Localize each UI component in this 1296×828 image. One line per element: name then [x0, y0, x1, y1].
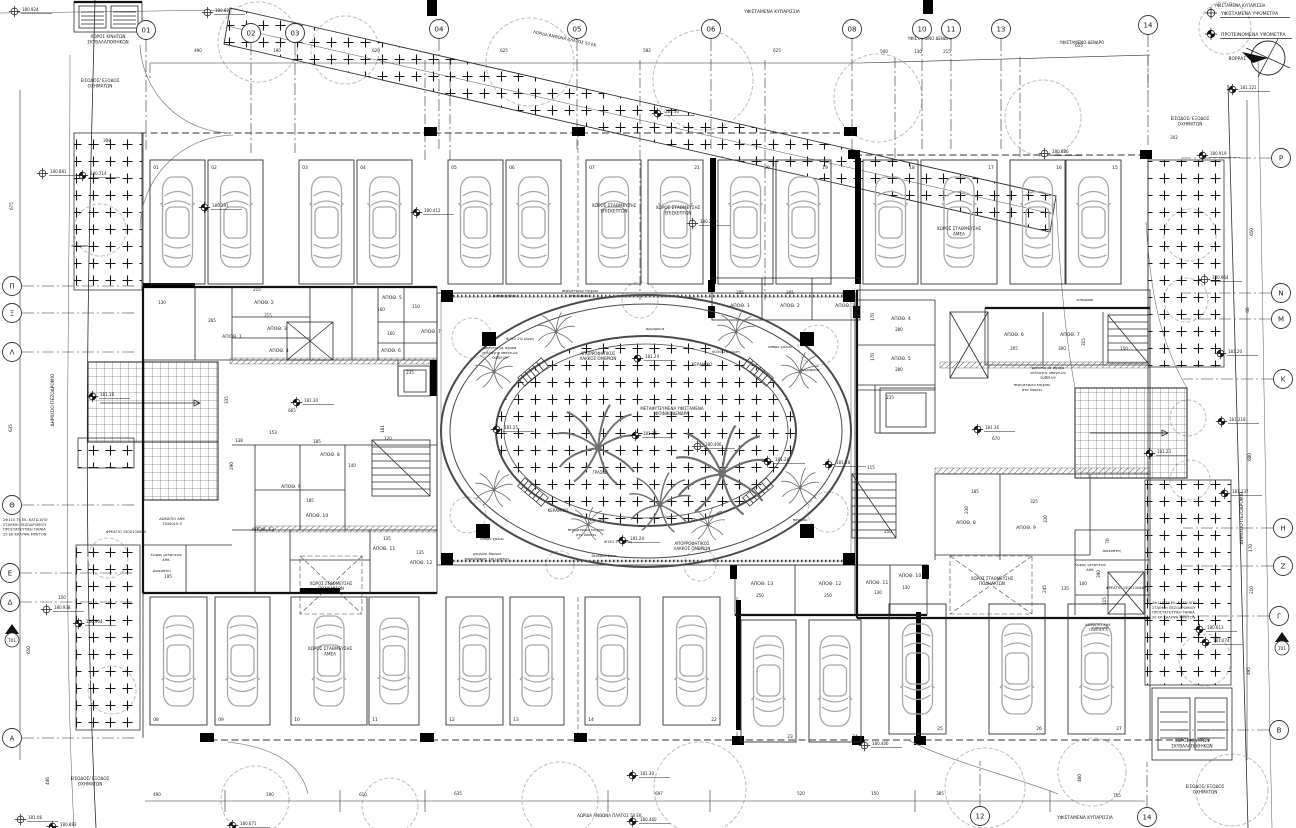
dimension-label: 130 — [914, 49, 922, 54]
elevation-value: 180.714 — [90, 171, 107, 176]
dimension-label: 153 — [269, 430, 277, 435]
trash-bins-top-left — [74, 2, 142, 32]
parking-stall: 13 — [510, 597, 564, 725]
elevation-value: 181.218 — [1229, 417, 1246, 422]
grid-bubble-label: 12 — [976, 813, 985, 821]
dimension-label: 135 — [1061, 586, 1069, 591]
room-label: ΑΠΟΘ. 8 — [320, 452, 340, 458]
room-label: ΑΠΟΘ. 6 — [381, 348, 401, 354]
parking-stall: 09 — [215, 597, 270, 725]
grid-bubble-label: Γ — [1277, 613, 1281, 621]
parking-stall-outline — [299, 160, 354, 284]
car-top-view-icon — [312, 616, 346, 706]
parking-stall-outline — [448, 160, 503, 284]
elevation-marker: 181.30 — [291, 397, 334, 408]
room-label: ΑΠΟΘ. 8 — [956, 520, 976, 526]
existing-elevation-marker-icon — [37, 168, 48, 179]
parking-stall: 22 — [663, 597, 720, 725]
elevation-value: 181.30 — [304, 398, 318, 403]
survey-point-marker: Τ01 — [5, 624, 19, 647]
annotation-text: ΑΠΟΡΡΟΦΗΤΙΚΟΣΛΑΚΚΟΣ ΟΜΒΡΙΩΝ — [580, 351, 617, 361]
elevation-marker: 180.406 — [859, 740, 902, 751]
annotation-text: παγκακι — [793, 518, 808, 522]
parking-stall-number: 21 — [694, 165, 700, 171]
dimension-label: 205 — [786, 290, 794, 295]
car-top-view-icon — [368, 177, 402, 267]
grid-bubble-label: Λ — [10, 349, 15, 357]
dimension-label: 185 — [971, 489, 979, 494]
parking-stall-number: 27 — [1116, 726, 1122, 732]
grid-bubble: Α — [3, 729, 138, 748]
dimension-label: 185 — [313, 439, 321, 444]
annotation-text: Φ150 1% κλιση — [604, 540, 632, 544]
room-label: ΑΠΟΘ. 11 — [866, 580, 889, 586]
grid-bubble: Κ — [1183, 370, 1293, 389]
grid-bubble-label: Μ — [1278, 316, 1284, 324]
parking-stall: 02 — [208, 160, 263, 284]
elevation-value: 180.919 — [1210, 151, 1227, 156]
room-label: ΑΠΟΘ. 12 — [410, 560, 433, 566]
dimension-label: 582 — [643, 48, 651, 53]
parking-stall: 11 — [369, 597, 419, 725]
proposed-elevation-legend-icon — [1205, 28, 1217, 40]
dimension-label: 280 — [895, 367, 903, 372]
existing-elevation-marker-icon — [41, 604, 52, 615]
dimension-label: 70 — [1105, 538, 1110, 544]
elevation-marker: 180.881 — [37, 168, 80, 179]
dimension-label: 610 — [359, 792, 367, 797]
room-label: ΑΠΟΘ. 10 — [899, 573, 922, 579]
room-label: ΑΠΟΘ. 2 — [254, 300, 274, 306]
elevation-value: 181.28 — [836, 460, 850, 465]
proposed-elevation-marker-icon — [291, 397, 302, 408]
dimension-label: 520 — [797, 791, 805, 796]
dimension-label: 330 — [1043, 515, 1048, 523]
parking-stall-outline — [369, 597, 419, 725]
elevation-value: 180.412 — [424, 208, 441, 213]
grid-bubble-label: Β — [1277, 727, 1282, 735]
dimension-label: 130 — [902, 585, 910, 590]
parking-stall-number: 09 — [218, 717, 224, 723]
elevation-value: 181.36 — [985, 425, 999, 430]
annotation-text: κυπαρισσι — [1092, 626, 1110, 630]
grid-bubble-label: Ν — [1278, 290, 1283, 298]
grid-bubble-label: Η — [1280, 525, 1285, 533]
parking-stall: 05 — [448, 160, 503, 284]
parking-stall-number: 24 — [852, 734, 858, 740]
annotation-text: ΥΦΙΣΤΑΜΕΝΑ ΚΥΠΑΡΙΣΣΙΑ — [1056, 815, 1113, 821]
elevation-value: 180.82 — [215, 8, 229, 13]
elevation-value: 181.20 — [1228, 349, 1242, 354]
grid-bubble-label: 10 — [918, 26, 927, 34]
room-label: ΑΠΟΘ. 13 — [252, 527, 275, 533]
parking-stall-number: 14 — [588, 717, 594, 723]
dimension-label: 181 — [380, 425, 385, 433]
room-label: ΑΠΟΘ. 11 — [373, 546, 396, 552]
dimension-label: 60 — [1245, 307, 1250, 313]
room-label: ΑΠΟΘ. 3 — [835, 303, 855, 309]
annotation-text: Διακοπτες — [1103, 549, 1122, 553]
car-top-view-icon — [219, 177, 253, 267]
dimension-label: 235 — [406, 370, 414, 375]
proposed-elevation-marker-icon — [47, 821, 58, 828]
dimension-label: 265 — [208, 318, 216, 323]
survey-point-marker: Τ01 — [1275, 632, 1289, 655]
dimension-label: 495 — [1246, 667, 1251, 675]
dimension-label: 697 — [655, 791, 663, 796]
elevation-marker: 180.279 — [687, 218, 730, 229]
elevation-marker: 181.36 — [972, 424, 1015, 435]
dimension-label: 625 — [773, 48, 781, 53]
dimension-label: 245 — [1042, 585, 1047, 593]
elevation-value: 181.30 — [640, 771, 654, 776]
annotation-text: ΕΙΣΟΔΟΣ/ ΕΞΟΔΟΣΟΧΗΜΑΤΩΝ — [81, 78, 120, 88]
parking-stall-number: 10 — [294, 717, 300, 723]
parking-stall-outline — [809, 620, 861, 742]
grid-bubble: Ξ — [3, 304, 138, 323]
grid-bubble-label: 04 — [435, 26, 444, 34]
dimension-label: 300 — [1058, 346, 1066, 351]
annotation-text: ΧΩΡΟΣ ΚΙΝΗΤΩΝΣΚΥΒΑΛΑΠΟΘΗΚΩΝ — [87, 34, 128, 44]
tree-icon — [221, 766, 289, 828]
dimension-label: 302 — [1170, 135, 1178, 140]
room-label: ΑΠΟΘ. 4 — [891, 316, 911, 322]
annotation-text: ΔΩΜΑΤΙΟ ΑΗΚ7540019-5 — [159, 517, 185, 526]
annotation-text: Διακοπτες — [153, 569, 172, 573]
car-top-view-icon — [787, 177, 821, 267]
dimension-label: 195 — [164, 574, 172, 579]
parking-stall-number: 13 — [513, 717, 519, 723]
parking-stall-number: 15 — [1112, 165, 1118, 171]
survey-point-label: Τ01 — [7, 638, 16, 644]
car-top-view-icon — [226, 616, 260, 706]
dimension-label: 635 — [454, 791, 462, 796]
dimension-label: 138 — [235, 438, 243, 443]
note-text: 2Φ110 75 ΕΚ. ΚΑΤΩ ΑΠΟΣΤΑΘΜΗ ΠΕΖΟΔΡΟΜΙΟΥΠ… — [3, 518, 48, 536]
existing-elevation-marker-icon — [202, 7, 213, 18]
elevation-marker: 180.671 — [227, 820, 270, 828]
existing-elevation-marker-icon — [9, 6, 20, 17]
annotation-text: ΦΡΕΑΤΙΟ 150Χ100Χ80 — [106, 530, 147, 534]
car-top-view-icon — [659, 177, 693, 267]
proposed-elevation-marker-icon — [227, 820, 238, 828]
grid-bubble-label: 06 — [707, 26, 716, 34]
car-top-view-icon — [517, 177, 551, 267]
annotation-text: αρμυρικια — [801, 368, 820, 372]
dimension-label: 670 — [992, 436, 1000, 441]
annotation-text: ΧΩΡΟΣ ΚΙΝΗΤΩΝΣΚΥΒΑΛΑΠΟΘΗΚΩΝ — [1171, 738, 1212, 748]
elevation-value: 181.15 — [643, 431, 657, 436]
parking-stall: 10 — [291, 597, 367, 725]
legend-existing-label: ΥΦΙΣΤΑΜΕΝΑ ΥΨΟΜΕΤΡΑ — [1220, 11, 1279, 17]
grid-bubble-label: 01 — [142, 27, 151, 35]
dimension-label: 230 — [964, 506, 969, 514]
room-label: ΑΠΟΘ. 1 — [730, 303, 750, 309]
annotation-text: Φ150 1% κλιση — [506, 337, 534, 341]
grid-bubble: Λ — [3, 343, 138, 362]
elevation-marker: 181.121 — [1227, 84, 1270, 95]
parking-stall-outline — [506, 160, 561, 284]
parking-stall-number: 19 — [822, 165, 828, 171]
tree-icon — [1005, 80, 1081, 156]
dimension-label: 150 — [58, 595, 66, 600]
proposed-elevation-marker-icon — [627, 770, 638, 781]
grid-bubble-label: Κ — [1281, 376, 1286, 384]
existing-elevation-marker-icon — [15, 814, 26, 825]
annotation-text: ασπρο χαλικι — [480, 537, 504, 541]
dimension-label: 290 — [229, 462, 234, 470]
elevation-marker: 181.28 — [823, 459, 866, 470]
proposed-elevation-marker-icon — [1197, 150, 1208, 161]
annotation-text: φρεατιο με σχαρασυλλογης υπογειωνομβριων — [1030, 366, 1065, 380]
tree-icon — [1199, 2, 1251, 54]
car-top-view-icon — [520, 616, 554, 706]
elevation-value: 180.391 — [212, 203, 229, 208]
parking-stall-outline — [741, 620, 796, 742]
dimension-label: 170 — [870, 353, 875, 361]
annotation-text: ΦΡΕΑΤΙΟ 150Χ100Χ80 — [1106, 586, 1147, 590]
dimension-label: 675 — [9, 202, 14, 210]
parking-stall: 04 — [357, 160, 412, 284]
existing-elevation-legend-icon — [1205, 7, 1217, 19]
annotation-text: ΥΦΙΣΤΑΜΕΝΑ ΚΥΠΑΡΙΣΣΙΑ — [743, 9, 800, 15]
parking-stall: 01 — [150, 160, 205, 284]
dimension-label: 215 — [943, 49, 951, 54]
grid-bubble-label: 14 — [1143, 814, 1152, 822]
parking-stall: 07 — [586, 160, 641, 284]
annotation-text: ΥΦΙΣΤΑΜΕΝΑ ΚΥΠΑΡΙΣΣΙΑ — [1214, 3, 1266, 8]
dimension-label: 135 — [383, 536, 391, 541]
elevation-value: 181.24 — [645, 354, 659, 359]
dimension-label: 390 — [1096, 570, 1101, 578]
proposed-elevation-marker-icon — [823, 459, 834, 470]
dimension-label: 115 — [867, 465, 875, 470]
grid-bubble-label: 05 — [573, 26, 582, 34]
grid-bubble-label: Ρ — [1279, 155, 1283, 163]
parking-stall-number: 25 — [937, 726, 943, 732]
dimension-label: 490 — [153, 792, 161, 797]
room-label: ΑΠΟΘ. 4 — [269, 348, 289, 354]
car-top-view-icon — [458, 616, 492, 706]
dimension-label: 250 — [824, 593, 832, 598]
car-top-view-icon — [378, 618, 410, 704]
car-top-view-icon — [597, 177, 631, 267]
dimension-label: 600 — [1247, 453, 1252, 461]
dimension-label: 308 — [103, 138, 111, 143]
north-compass: ΒΟΡΡΑΣ — [1228, 39, 1290, 77]
grid-bubble: 01 — [137, 21, 156, 151]
dimension-label: 190 — [273, 48, 281, 53]
parking-stall-outline — [1066, 160, 1121, 284]
room-label: ΑΠΟΘ. 12 — [819, 581, 842, 587]
elevation-value: 180.406 — [705, 442, 722, 447]
dimension-label: 150 — [1120, 346, 1128, 351]
dimension-label: 446 — [45, 777, 50, 785]
grid-bubble-label: Ε — [8, 570, 12, 578]
grid-bubble: 14 — [1139, 16, 1158, 146]
elevation-value: 180.613 — [1207, 625, 1224, 630]
room-label: ΑΠΟΘ. 5 — [382, 295, 402, 301]
annotation-text: ΛΩΡΙΔΑ ΑΝΘΩΝΑ ΠΛΑΤΟΣ 50 ΕΚ. — [533, 29, 598, 48]
parking-stall: 24 — [809, 620, 861, 742]
room-label: ΑΠΟΘ. 10 — [306, 513, 329, 519]
legend-proposed-label: ΠΡΟΤΕΙΝΟΜΕΝΑ ΥΨΟΜΕΤΡΑ — [1221, 32, 1286, 38]
annotation-text: ΥΦΙΣΤΑΜΕΝΟ ΔΕΝΔΡΟ — [1059, 40, 1104, 45]
note-text: 2Φ110 75 ΕΚ. ΚΑΤΩ ΑΠΟΣΤΑΘΜΗ ΠΕΖΟΔΡΟΜΙΟΥΠ… — [1152, 601, 1197, 619]
grid-bubble-label: 13 — [997, 26, 1006, 34]
grid-bubble-label: 11 — [947, 26, 956, 34]
elevation-value: 181.30 — [665, 109, 679, 114]
dimension-label: 755 — [1113, 793, 1121, 798]
dimension-label: 210 — [842, 290, 850, 295]
dimension-label: 160 — [387, 331, 395, 336]
grid-bubble-label: 08 — [848, 26, 857, 34]
car-top-view-icon — [596, 616, 630, 706]
annotation-text: δενδρολιβανο — [591, 554, 616, 558]
elevation-value: 180.406 — [872, 741, 889, 746]
elevation-value: 181.25 — [504, 425, 518, 430]
parking-stall: 15 — [1066, 160, 1121, 284]
parking-stall: 23 — [741, 620, 796, 742]
parking-stall: 03 — [299, 160, 354, 284]
elevation-marker: 181.30 — [627, 770, 670, 781]
elevation-value: 181.18 — [100, 392, 114, 397]
dimension-label: 250 — [756, 593, 764, 598]
parking-stall-outline — [586, 160, 641, 284]
elevation-marker: 180.924 — [9, 6, 52, 17]
parking-stall-number: 18 — [909, 165, 915, 171]
parking-stall-number: 17 — [988, 165, 994, 171]
annotation-text: ασπρο χαλικι — [493, 294, 517, 298]
annotation-text: ΕΙΣΟΔΟΣ/ ΕΞΟΔΟΣΟΧΗΜΑΤΩΝ — [71, 776, 110, 786]
proposed-elevation-marker-icon — [199, 202, 210, 213]
existing-elevation-marker-icon — [687, 218, 698, 229]
room-label: ΑΠΟΘ. 5 — [891, 356, 911, 362]
proposed-elevation-marker-icon — [411, 207, 422, 218]
parking-stall-number: 20 — [764, 165, 770, 171]
dimension-label: 325 — [1030, 499, 1038, 504]
elevation-value: 181.23 — [1157, 449, 1171, 454]
elevation-marker: 180.919 — [1197, 150, 1240, 161]
survey-point-label: Τ01 — [1277, 646, 1286, 652]
annotation-text: περιμετρικο τοιχακιστο δοκακι — [1014, 383, 1051, 392]
room-label: ΑΠΟΘ. 7 — [421, 329, 441, 335]
dimension-label: 665 — [288, 408, 296, 413]
parking-stall-number: 04 — [360, 165, 366, 171]
grid-bubble-label: 02 — [247, 30, 256, 38]
car-top-view-icon — [161, 177, 195, 267]
grid-bubble: Β — [1179, 721, 1289, 740]
annotation-text: ΛΩΡΙΔΑ ΑΝΘΩΝΑ ΠΛΑΤΟΣ 50 ΕΚ. — [577, 813, 643, 818]
elevation-value: 181.06 — [28, 815, 42, 820]
car-top-view-icon — [1080, 624, 1114, 714]
annotation-text: ΕΙΣΟΔΟΣ/ ΕΞΟΔΟΣΟΧΗΜΑΤΩΝ — [1171, 116, 1210, 126]
dimension-label: 335 — [224, 396, 229, 404]
car-top-view-icon — [729, 177, 763, 267]
elevation-value: 180.279 — [700, 219, 717, 224]
north-label: ΒΟΡΡΑΣ — [1228, 56, 1246, 62]
grid-bubble-label: Θ — [9, 502, 15, 510]
annotation-text: κυπαρισσι — [72, 244, 90, 248]
parking-stall: 12 — [446, 597, 503, 725]
dimension-label: 135 — [416, 550, 424, 555]
parking-stall-outline — [150, 160, 205, 284]
dimension-label: 215 — [264, 313, 272, 318]
dimension-label: 620 — [372, 48, 380, 53]
tree-icon — [362, 778, 418, 828]
annotation-text: περιμετρικο τοιχακιστο δοκακι — [568, 528, 605, 537]
parking-stall-outline — [208, 160, 263, 284]
room-label: ΑΠΟΘ. 9 — [1016, 525, 1036, 531]
annotation-text: Χωρος μετρητωνΑΗΚ — [150, 553, 181, 562]
grid-bubble-label: 03 — [291, 30, 300, 38]
grid-bubble: Θ — [3, 496, 138, 515]
elevation-value: 180.904 — [86, 619, 103, 624]
elevation-value: 181.121 — [1240, 85, 1257, 90]
room-label: ΑΠΟΘ. 3 — [267, 326, 287, 332]
room-label: ΑΠΟΘ. 7 — [1060, 332, 1080, 338]
dimension-label: 140 — [348, 463, 356, 468]
dimension-label: 205 — [1010, 346, 1018, 351]
annotation-text: ΔΗΜΟΣΙΟ ΠΕΖΟΔΡΟΜΙΟ — [1239, 491, 1245, 544]
dimension-label: 110 — [412, 304, 420, 309]
dimension-label: 205 — [736, 290, 744, 295]
annotation-text: ασπρο χαλικι — [768, 345, 792, 349]
parking-stall-number: 02 — [211, 165, 217, 171]
grid-bubble-label: 14 — [1144, 22, 1153, 30]
annotation-text: ΓΡΑΣΙΔΙ — [593, 470, 608, 475]
dimension-label: 490 — [194, 48, 202, 53]
room-label: ΑΠΟΘ. 6 — [1004, 332, 1024, 338]
elevation-value: 180.938 — [54, 605, 71, 610]
elevation-value: 181.274 — [1213, 638, 1230, 643]
parking-stall-number: 03 — [302, 165, 308, 171]
annotation-text: χαμηλοι θαμνοιπικροδαφνες και μυρτιες — [464, 552, 509, 561]
car-top-view-icon — [310, 177, 344, 267]
annotation-text: ΧΩΡΟΣ ΣΤΑΘΜΕΥΣΗΣΕΠΙΣΚΕΠΤΩΝ — [656, 205, 701, 215]
elevation-value: 180.881 — [50, 169, 67, 174]
parking-stall-number: 06 — [509, 165, 515, 171]
legend: ΥΦΙΣΤΑΜΕΝΑ ΥΨΟΜΕΤΡΑ ΠΡΟΤΕΙΝΟΜΕΝΑ ΥΨΟΜΕΤΡ… — [1205, 7, 1292, 40]
grid-bubble: 14 — [1138, 762, 1157, 827]
dimension-label: 280 — [895, 327, 903, 332]
trash-bins-bottom-right — [1152, 688, 1232, 760]
parking-stall-number: 01 — [153, 165, 159, 171]
car-top-view-icon — [675, 616, 709, 706]
grid-bubble-label: Α — [10, 735, 15, 743]
elevation-value: 181.24 — [630, 536, 644, 541]
dimension-label: 170 — [1248, 544, 1253, 552]
annotation-text: φρεατιο με σχαρασυλλογης υπογειωνομβριων — [482, 346, 517, 360]
dimension-label: 385 — [936, 791, 944, 796]
dimension-label: 120 — [384, 436, 392, 441]
car-top-view-icon — [1077, 177, 1111, 267]
dimension-label: 210 — [1249, 586, 1254, 594]
palm-tree-icon — [475, 470, 512, 506]
grid-bubble-label: Π — [9, 283, 14, 291]
parking-stall-number: 22 — [711, 717, 717, 723]
tree-icon — [654, 742, 746, 828]
elevation-value: 180.892 — [60, 822, 77, 827]
elevation-marker: 180.412 — [411, 207, 454, 218]
elevation-marker: 180.886 — [1039, 148, 1082, 159]
car-top-view-icon — [459, 177, 493, 267]
annotation-text: κυπαρισσι — [1077, 298, 1095, 302]
grid-bubble: 13 — [992, 20, 1011, 150]
tree-icon — [522, 762, 598, 828]
car-top-view-icon — [162, 616, 196, 706]
annotation-text: ΔΗΜΟΣΙΟ ΠΕΖΟΔΡΟΜΙΟ — [50, 373, 56, 426]
